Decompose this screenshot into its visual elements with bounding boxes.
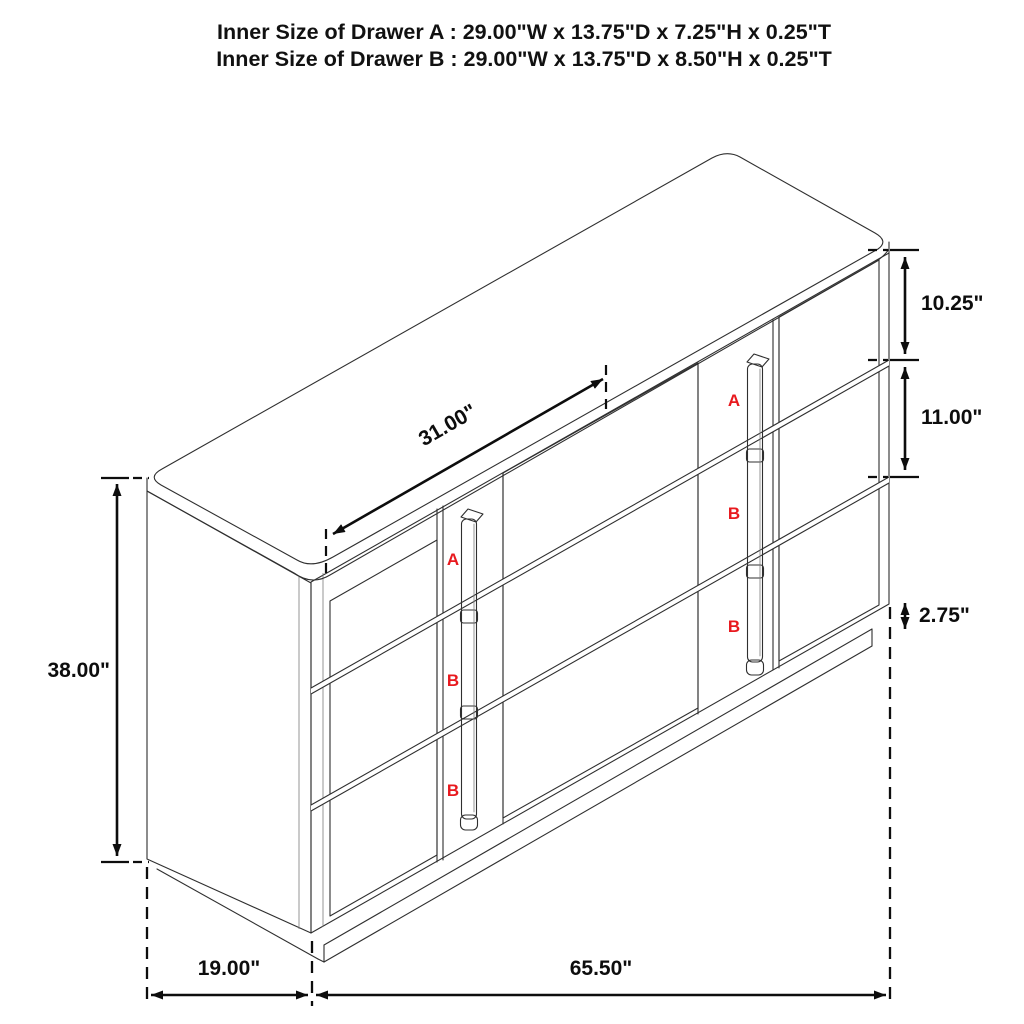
left-handle xyxy=(461,509,484,830)
base-height-label: 2.75" xyxy=(919,604,970,627)
drawer-a-height-label: 10.25" xyxy=(921,292,984,315)
dresser-drawing xyxy=(147,154,889,962)
depth-label: 19.00" xyxy=(198,957,261,980)
left-drawer-label-b2: B xyxy=(447,781,459,800)
fluted-panel-left xyxy=(330,540,437,916)
right-drawer-label-b1: B xyxy=(728,504,740,523)
front-face xyxy=(311,253,889,933)
dimension-width: 65.50" xyxy=(316,957,886,995)
drawer-letter-labels: A B B A B B xyxy=(447,391,740,800)
dimension-depth: 19.00" xyxy=(151,957,308,995)
dresser-diagram-canvas: A B B A B B 38.00" 10.25" 11.00" 2.75" xyxy=(0,0,1024,1024)
dimension-overall-height: 38.00" xyxy=(47,478,149,862)
opening-width-label: 31.00" xyxy=(415,400,481,451)
title-line-1: Inner Size of Drawer A : 29.00"W x 13.75… xyxy=(217,20,831,44)
drawer-dividers xyxy=(311,360,889,811)
fluted-panel-right xyxy=(779,260,879,661)
right-drawer-label-a: A xyxy=(728,391,740,410)
left-drawer-label-a: A xyxy=(447,550,459,569)
right-handle xyxy=(747,354,770,675)
dimension-drawer-a-height: 10.25" xyxy=(868,250,984,360)
dimension-drawer-b-height: 11.00" xyxy=(868,367,982,477)
top-surface xyxy=(154,154,883,564)
left-drawer-label-b1: B xyxy=(447,671,459,690)
dimension-base-height: 2.75" xyxy=(905,603,970,629)
overall-height-label: 38.00" xyxy=(47,659,110,682)
drawer-b-height-label: 11.00" xyxy=(921,406,982,429)
right-drawer-label-b2: B xyxy=(728,617,740,636)
left-side-panel xyxy=(147,491,311,933)
title-line-2: Inner Size of Drawer B : 29.00"W x 13.75… xyxy=(216,47,832,71)
width-label: 65.50" xyxy=(570,957,633,980)
title-block: Inner Size of Drawer A : 29.00"W x 13.75… xyxy=(216,20,832,71)
fluted-panel-middle xyxy=(503,363,698,818)
top-slab-edge xyxy=(147,242,889,580)
dresser-dimension-diagram-page: A B B A B B 38.00" 10.25" 11.00" 2.75" xyxy=(0,0,1024,1024)
